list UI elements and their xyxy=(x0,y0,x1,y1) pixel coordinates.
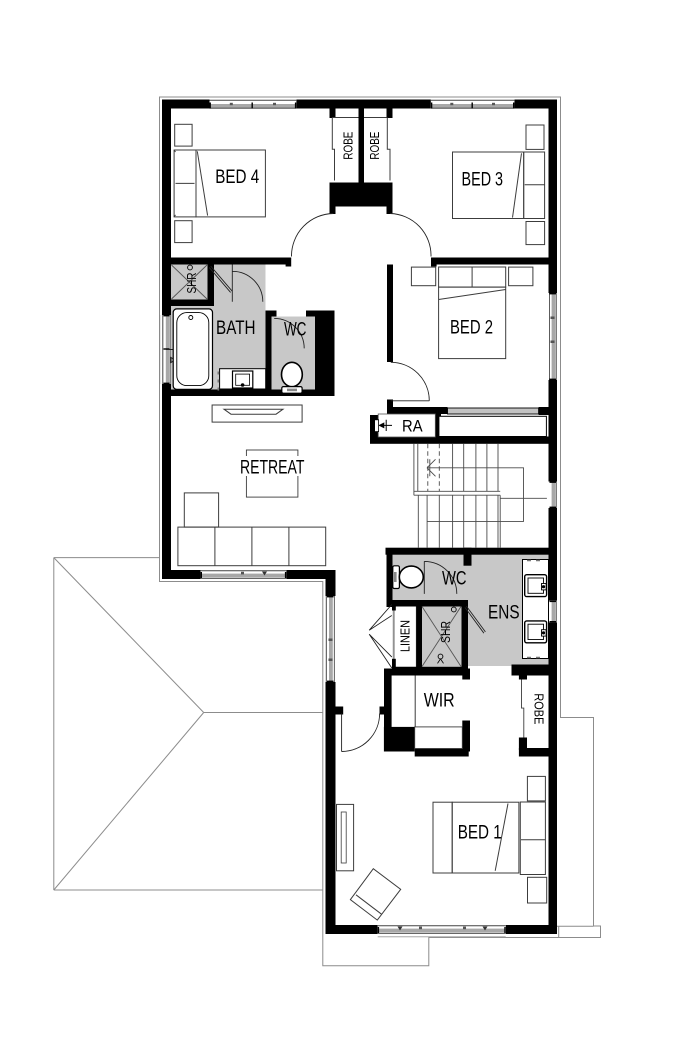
svg-text:ROBE: ROBE xyxy=(532,693,547,724)
svg-text:WC: WC xyxy=(284,320,307,341)
svg-text:SHR: SHR xyxy=(439,621,453,643)
svg-text:RETREAT: RETREAT xyxy=(240,458,305,479)
svg-text:LINEN: LINEN xyxy=(397,620,412,652)
svg-text:BED 2: BED 2 xyxy=(450,318,493,339)
svg-text:ROBE: ROBE xyxy=(342,132,356,160)
svg-text:SHR: SHR xyxy=(185,273,199,294)
svg-text:BED 4: BED 4 xyxy=(215,167,259,188)
svg-text:BED 3: BED 3 xyxy=(462,170,504,191)
svg-text:WIR: WIR xyxy=(424,691,455,712)
svg-text:BATH: BATH xyxy=(216,318,256,339)
svg-text:RA: RA xyxy=(402,417,423,436)
svg-text:BED 1: BED 1 xyxy=(458,823,502,844)
svg-text:WC: WC xyxy=(442,569,467,590)
svg-text:ENS: ENS xyxy=(488,603,520,624)
svg-text:ROBE: ROBE xyxy=(368,132,382,160)
